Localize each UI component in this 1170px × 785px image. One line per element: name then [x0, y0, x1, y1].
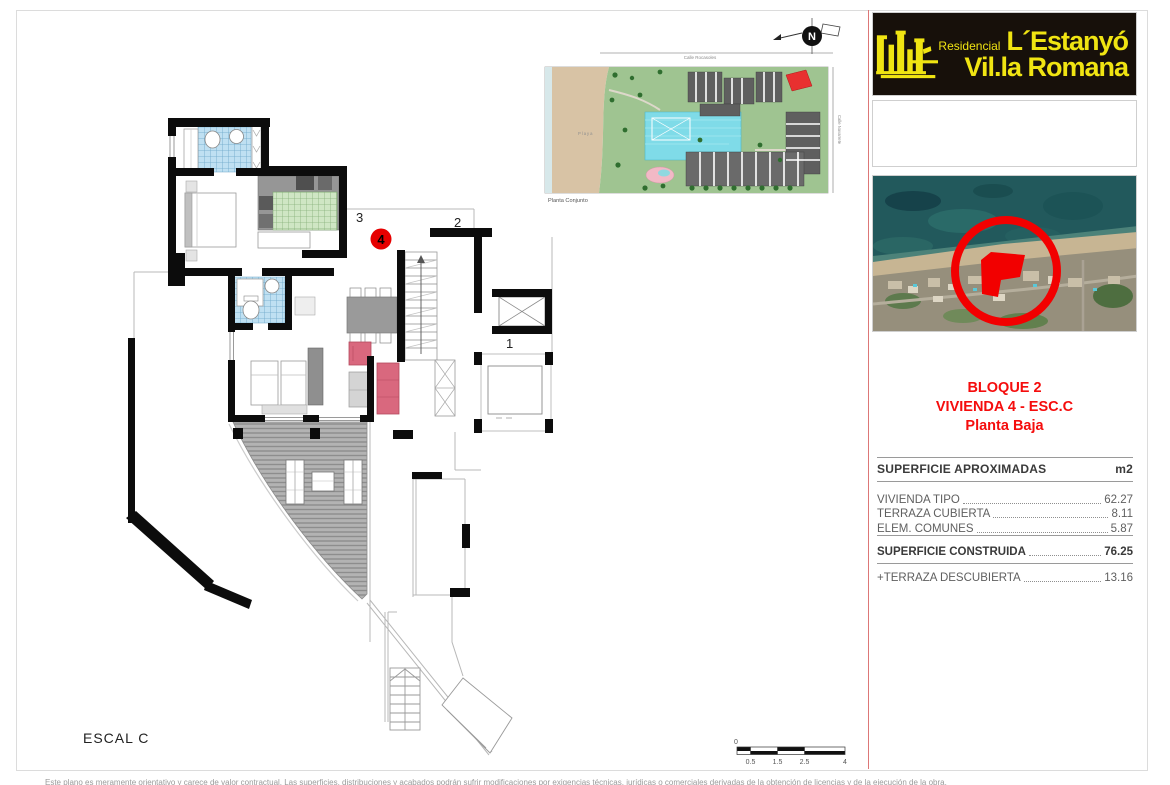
scale-label: ESCAL C: [83, 730, 149, 746]
brand-name-line2: Vil.la Romana: [964, 54, 1128, 80]
unit-title-block: BLOQUE 2 VIVIENDA 4 - ESC.C Planta Baja: [872, 379, 1137, 436]
unit-4-marker: 4: [371, 229, 392, 250]
unit-label-4: 4: [377, 232, 385, 247]
area-value: 13.16: [1104, 572, 1133, 584]
area-row-terraza-descubierta: +TERRAZA DESCUBIERTA 13.16: [877, 570, 1133, 585]
dot-leader: [1029, 555, 1101, 556]
exterior-stair: [390, 668, 512, 753]
table-rule: [877, 481, 1133, 482]
kitchen-tiles: [273, 192, 337, 230]
empty-info-box: [872, 100, 1137, 167]
lounge-chairs: [251, 361, 307, 414]
area-value: 76.25: [1104, 546, 1133, 558]
closet: [252, 124, 261, 174]
areas-table: SUPERFICIE APROXIMADAS m2 VIVIENDA TIPO …: [877, 457, 1133, 584]
site-beach: [552, 67, 609, 193]
areas-header-label: SUPERFICIE APROXIMADAS: [877, 462, 1046, 476]
elevator: [499, 297, 545, 326]
dot-leader: [993, 517, 1108, 518]
scale-tick-4: 4: [843, 759, 847, 766]
area-label: ELEM. COMUNES: [877, 523, 974, 535]
floorplan-drawing: Calle Rocasoles Playa: [0, 0, 870, 785]
table-rule: [877, 563, 1133, 564]
table-rule: [877, 535, 1133, 536]
area-row-vivienda: VIVIENDA TIPO 62.27: [877, 491, 1133, 506]
street-right-label: Calle Navarrete: [837, 115, 842, 145]
area-value: 5.87: [1111, 523, 1133, 535]
dot-leader: [963, 503, 1101, 504]
aerial-photo-image: [873, 176, 1137, 332]
brand-residencial: Residencial: [938, 39, 1000, 53]
brand-logo: Residencial L´Estanyó Vil.la Romana: [872, 12, 1137, 96]
scale-tick-25: 2.5: [800, 759, 810, 766]
unit-title-line3: Planta Baja: [872, 417, 1137, 436]
unit-title-line1: BLOQUE 2: [872, 379, 1137, 398]
brand-name-line1: L´Estanyó: [1006, 28, 1128, 54]
area-label: +TERRAZA DESCUBIERTA: [877, 572, 1021, 584]
area-row-terraza-cubierta: TERRAZA CUBIERTA 8.11: [877, 506, 1133, 521]
unit-title-line2: VIVIENDA 4 - ESC.C: [872, 398, 1137, 417]
covered-terrace-deck: [233, 422, 367, 599]
scale-bar: 0 0.5 1.5 2.5 4: [734, 739, 847, 766]
bed: [185, 181, 236, 261]
area-value: 62.27: [1104, 494, 1133, 506]
lower-right-room: [481, 354, 551, 431]
dot-leader: [977, 532, 1108, 533]
staircase: [405, 252, 455, 416]
site-water: [545, 67, 552, 193]
site-kids-pool: [646, 167, 674, 183]
unit-label-2: 2: [454, 215, 461, 230]
area-value: 8.11: [1111, 508, 1133, 520]
area-row-construida: SUPERFICIE CONSTRUIDA 76.25: [877, 542, 1133, 558]
roman-columns-icon: [873, 18, 938, 90]
scale-zero: 0: [734, 739, 738, 746]
aerial-photo: [872, 175, 1137, 332]
footer-disclaimer: Este plano es meramente orientativo y ca…: [45, 778, 1135, 785]
beach-label: Playa: [578, 131, 593, 136]
dining-set: [347, 288, 397, 343]
kitchen-island: [258, 232, 310, 248]
area-label: SUPERFICIE CONSTRUIDA: [877, 546, 1026, 558]
dot-leader: [1024, 581, 1102, 582]
site-plan: Calle Rocasoles Playa: [545, 53, 842, 204]
siteplan-caption: Planta Conjunto: [548, 198, 588, 204]
street-top-label: Calle Rocasoles: [684, 55, 717, 60]
sideboard: [308, 348, 323, 405]
area-row-elem-comunes: ELEM. COMUNES 5.87: [877, 520, 1133, 535]
north-arrow-icon: N: [773, 18, 840, 54]
unit-label-1: 1: [506, 336, 513, 351]
areas-unit-label: m2: [1115, 462, 1133, 476]
unit-label-3: 3: [356, 210, 363, 225]
north-letter: N: [808, 31, 816, 43]
area-label: TERRAZA CUBIERTA: [877, 508, 990, 520]
area-label: VIVIENDA TIPO: [877, 494, 960, 506]
plan-sheet: Calle Rocasoles Playa: [0, 0, 1170, 785]
scale-tick-15: 1.5: [773, 759, 783, 766]
scale-tick-05: 0.5: [746, 759, 756, 766]
